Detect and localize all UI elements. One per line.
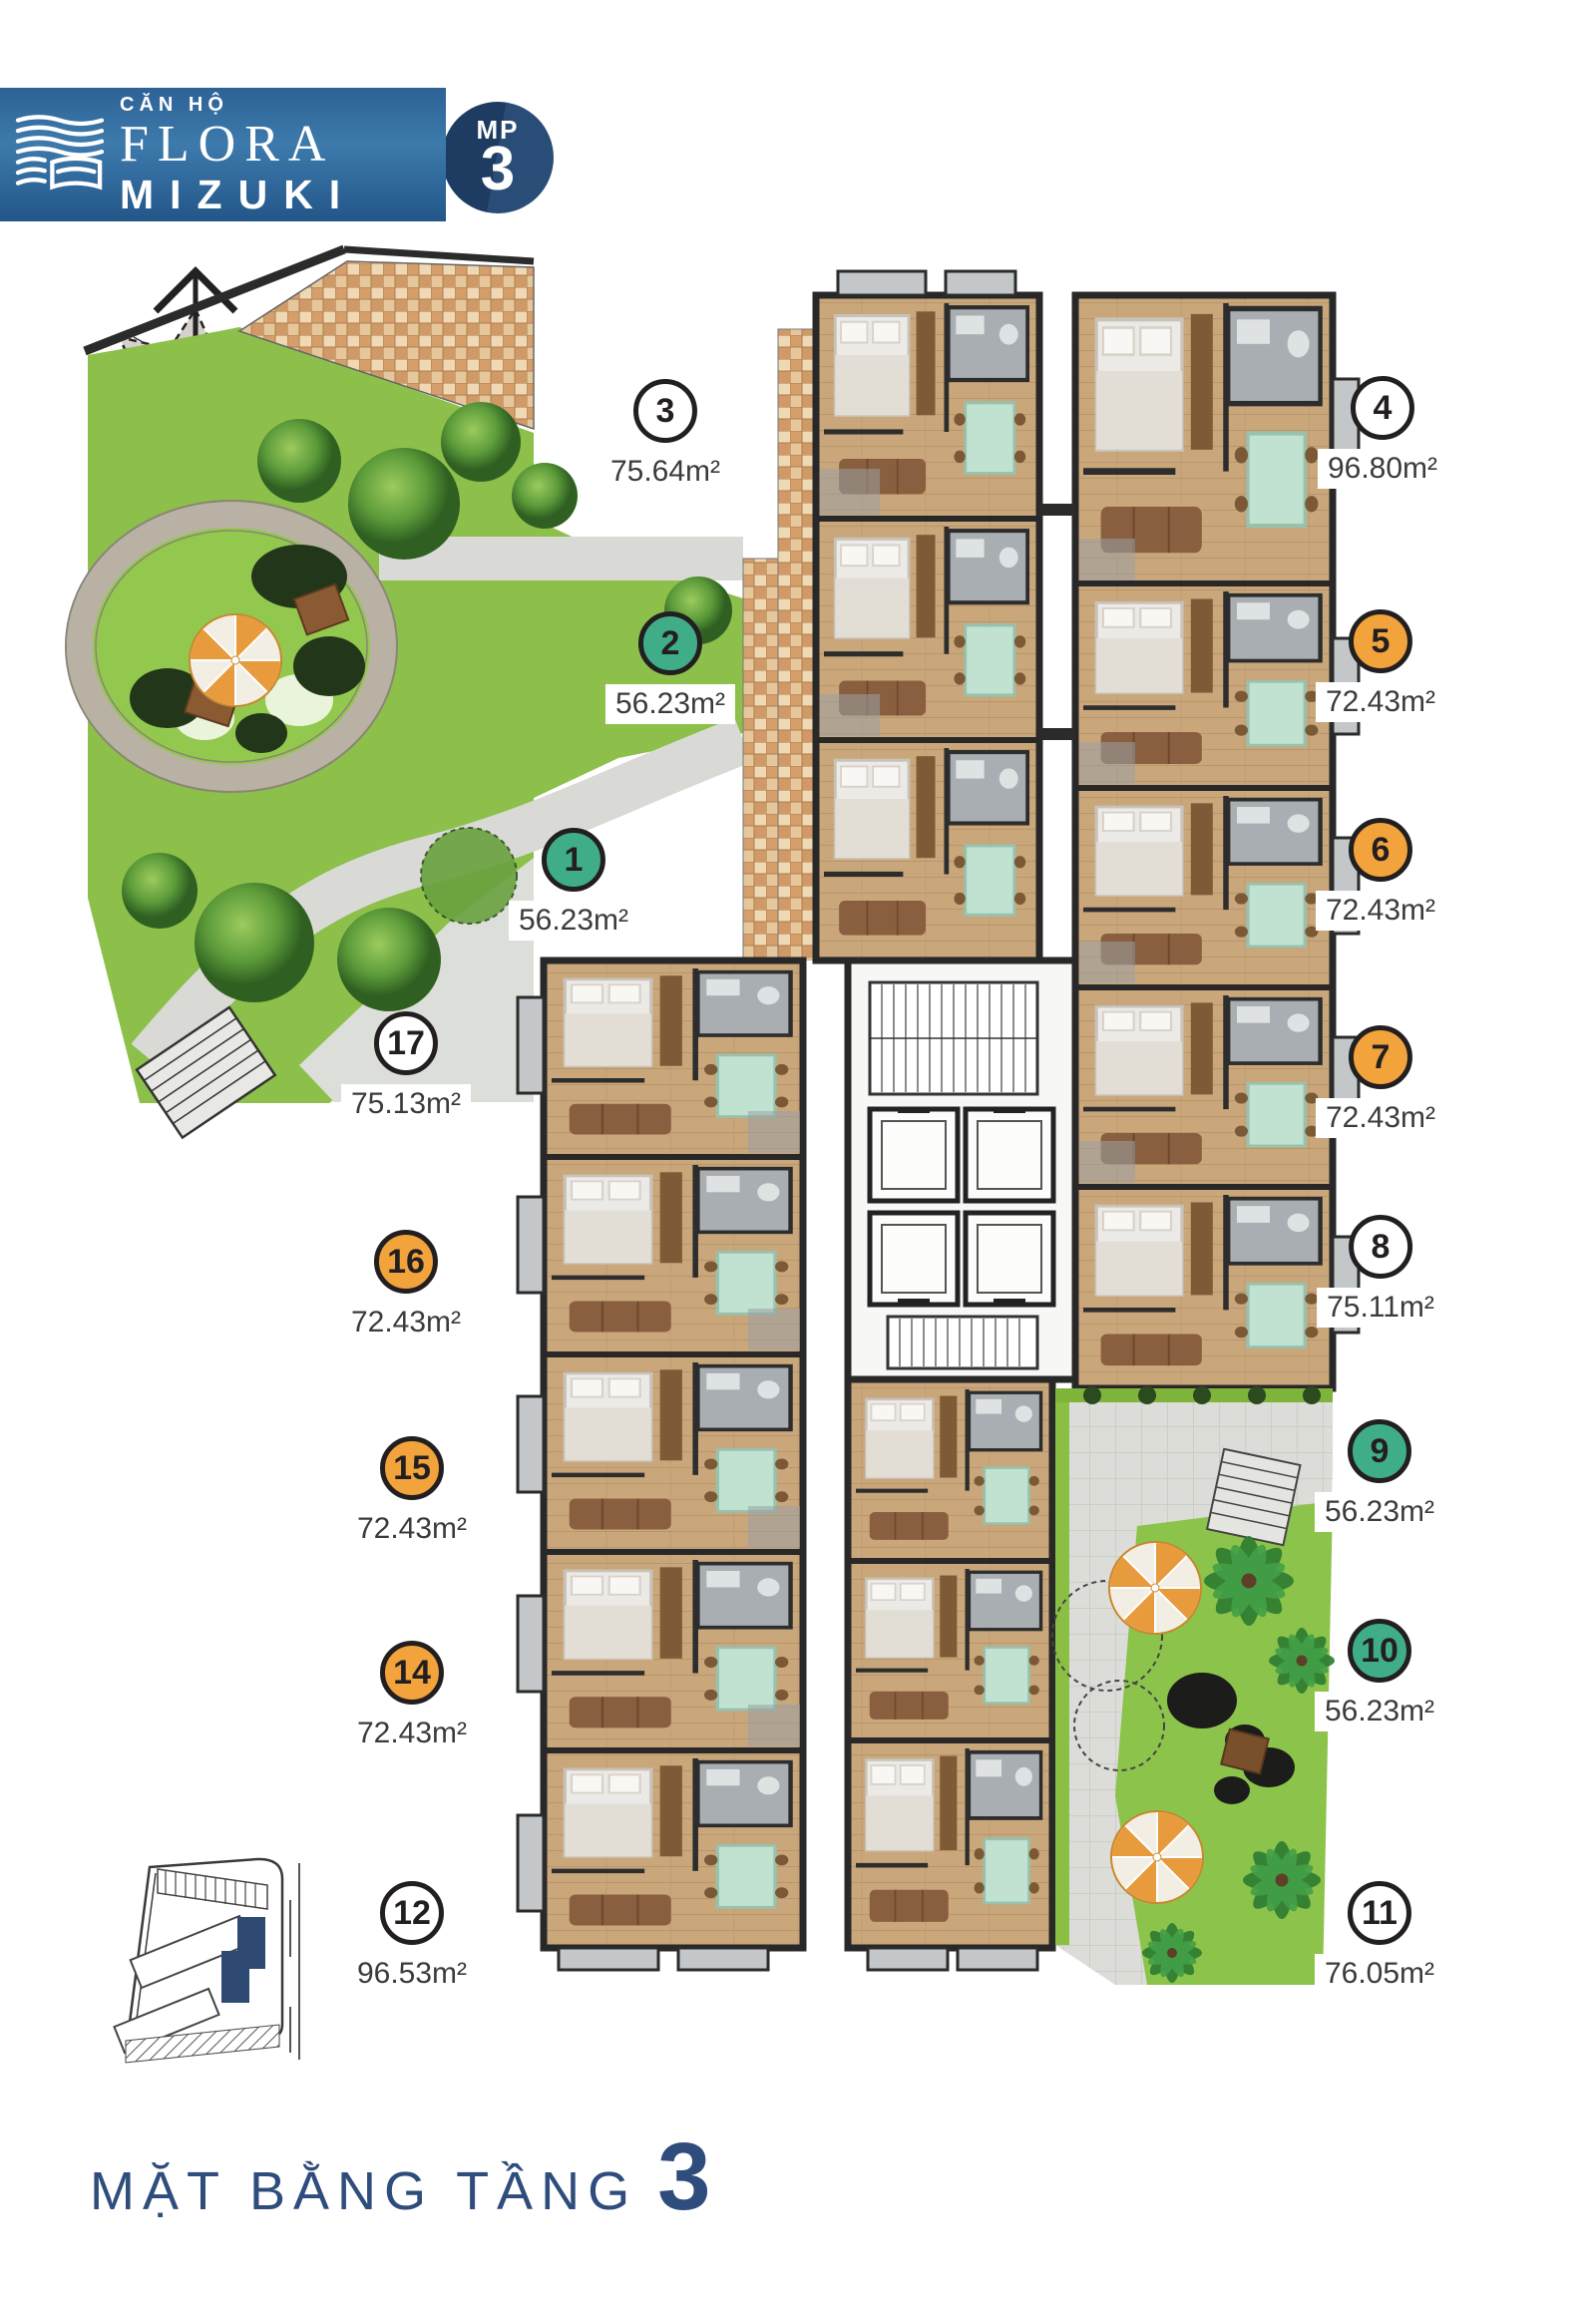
unit-area: 56.23m² bbox=[1315, 1492, 1444, 1532]
unit-area: 72.43m² bbox=[341, 1303, 471, 1342]
unit-area: 72.43m² bbox=[1316, 1098, 1445, 1138]
unit-number: 4 bbox=[1351, 376, 1414, 440]
unit-badge-12: 12 96.53m² bbox=[347, 1881, 477, 1994]
floor-title: MẶT BẰNG TẦNG 3 bbox=[90, 2122, 710, 2232]
unit-area: 75.13m² bbox=[341, 1084, 471, 1124]
unit-area: 72.43m² bbox=[347, 1509, 477, 1549]
unit-badge-7: 7 72.43m² bbox=[1316, 1025, 1445, 1138]
unit-badge-3: 3 75.64m² bbox=[600, 379, 730, 492]
logo-brand-flora: FLORA bbox=[120, 119, 356, 171]
unit-badge-2: 2 56.23m² bbox=[605, 611, 735, 724]
unit-area: 56.23m² bbox=[605, 684, 735, 724]
unit-area: 72.43m² bbox=[347, 1714, 477, 1753]
unit-number: 17 bbox=[374, 1011, 438, 1075]
project-logo: CĂN HỘ FLORA MIZUKI bbox=[0, 88, 446, 221]
unit-badge-5: 5 72.43m² bbox=[1316, 609, 1445, 722]
unit-number: 2 bbox=[638, 611, 702, 675]
unit-number: 7 bbox=[1349, 1025, 1412, 1089]
unit-area: 75.64m² bbox=[600, 452, 730, 492]
mp-floor-badge: MP 3 bbox=[442, 102, 554, 213]
unit-number: 12 bbox=[380, 1881, 444, 1945]
unit-number: 9 bbox=[1348, 1419, 1411, 1483]
floor-title-number: 3 bbox=[657, 2122, 710, 2232]
unit-badge-17: 17 75.13m² bbox=[341, 1011, 471, 1124]
unit-area: 72.43m² bbox=[1316, 891, 1445, 931]
unit-area: 96.53m² bbox=[347, 1954, 477, 1994]
logo-category: CĂN HỘ bbox=[120, 95, 356, 115]
unit-area: 56.23m² bbox=[509, 901, 638, 941]
site-location-map bbox=[114, 1859, 299, 2063]
unit-number: 3 bbox=[633, 379, 697, 443]
landscape-garden-bottom-right bbox=[1052, 1386, 1335, 1985]
unit-badge-10: 10 56.23m² bbox=[1315, 1619, 1444, 1731]
floor-title-label: MẶT BẰNG TẦNG bbox=[90, 2160, 637, 2222]
unit-number: 16 bbox=[374, 1230, 438, 1294]
unit-number: 11 bbox=[1348, 1881, 1411, 1945]
unit-badge-15: 15 72.43m² bbox=[347, 1436, 477, 1549]
unit-badge-14: 14 72.43m² bbox=[347, 1641, 477, 1753]
unit-area: 76.05m² bbox=[1315, 1954, 1444, 1994]
mp-badge-number: 3 bbox=[481, 141, 515, 199]
unit-badge-1: 1 56.23m² bbox=[509, 828, 638, 941]
unit-number: 5 bbox=[1349, 609, 1412, 673]
unit-number: 15 bbox=[380, 1436, 444, 1500]
unit-number: 8 bbox=[1349, 1215, 1412, 1279]
unit-area: 75.11m² bbox=[1317, 1288, 1444, 1328]
unit-badge-8: 8 75.11m² bbox=[1317, 1215, 1444, 1328]
core-stairs-elevators bbox=[848, 960, 1075, 1379]
unit-badge-4: 4 96.80m² bbox=[1318, 376, 1447, 489]
unit-badge-6: 6 72.43m² bbox=[1316, 818, 1445, 931]
unit-area: 96.80m² bbox=[1318, 449, 1447, 489]
unit-area: 56.23m² bbox=[1315, 1692, 1444, 1731]
unit-number: 10 bbox=[1348, 1619, 1411, 1683]
wave-logo-icon bbox=[0, 113, 120, 196]
unit-number: 6 bbox=[1349, 818, 1412, 882]
unit-number: 1 bbox=[542, 828, 605, 892]
unit-area: 72.43m² bbox=[1316, 682, 1445, 722]
unit-badge-9: 9 56.23m² bbox=[1315, 1419, 1444, 1532]
logo-brand-mizuki: MIZUKI bbox=[120, 175, 356, 215]
unit-number: 14 bbox=[380, 1641, 444, 1705]
unit-badge-16: 16 72.43m² bbox=[341, 1230, 471, 1342]
unit-badge-11: 11 76.05m² bbox=[1315, 1881, 1444, 1994]
floor-plan-page: CĂN HỘ FLORA MIZUKI MP 3 1 56.23m² 2 56.… bbox=[0, 0, 1596, 2297]
